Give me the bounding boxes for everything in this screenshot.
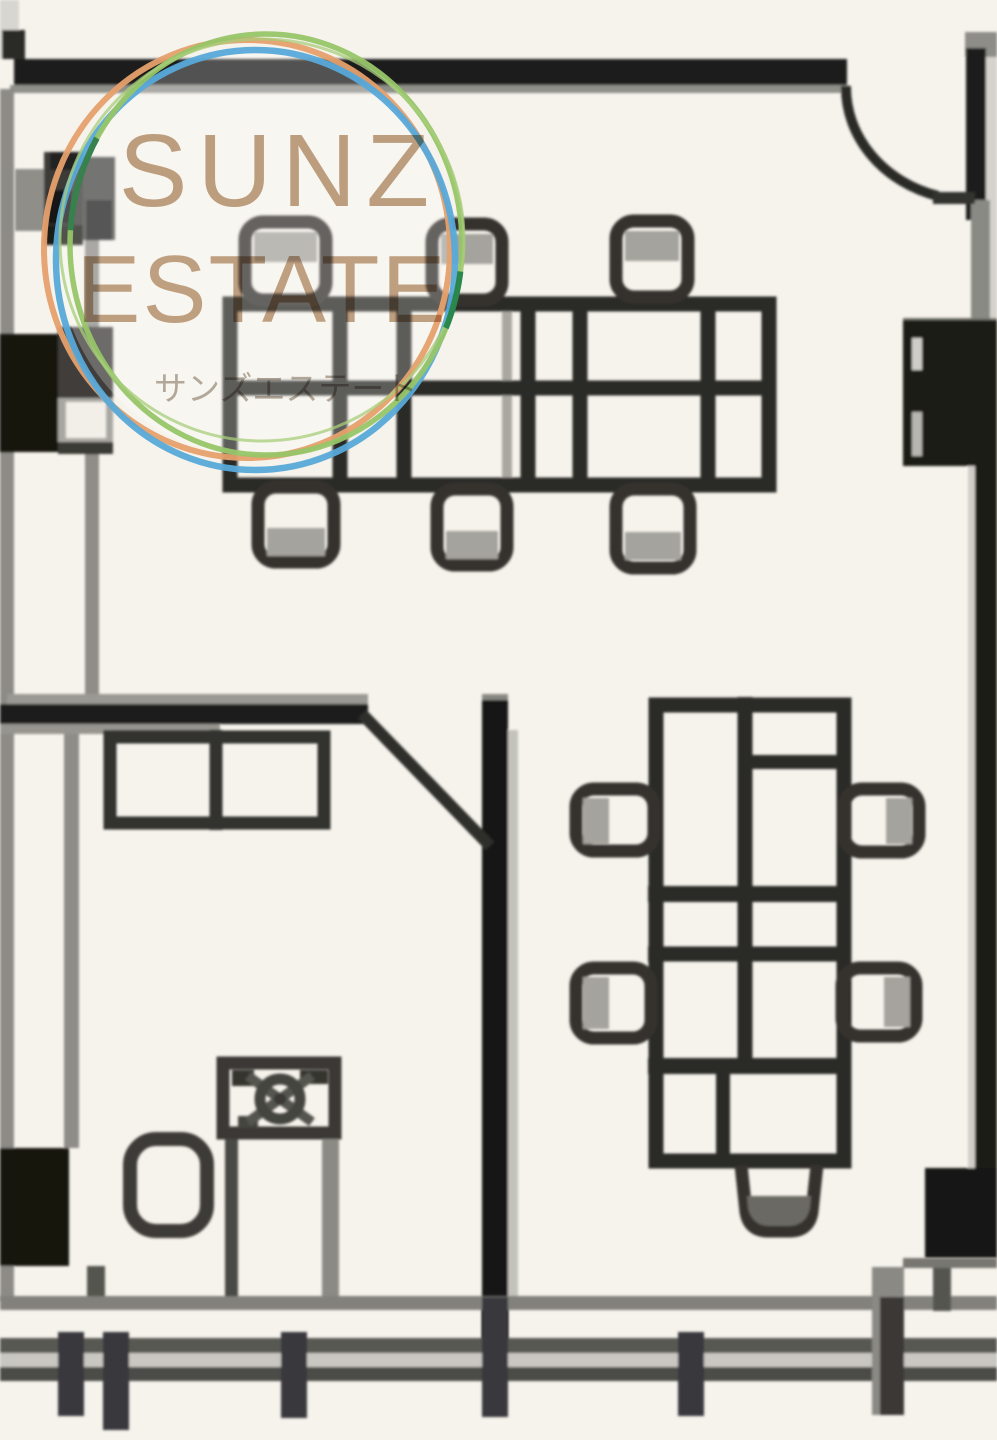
- svg-text:ESTATE: ESTATE: [76, 236, 447, 343]
- svg-text:サンズエステート: サンズエステート: [154, 370, 417, 407]
- svg-text:SUNZ: SUNZ: [119, 113, 439, 228]
